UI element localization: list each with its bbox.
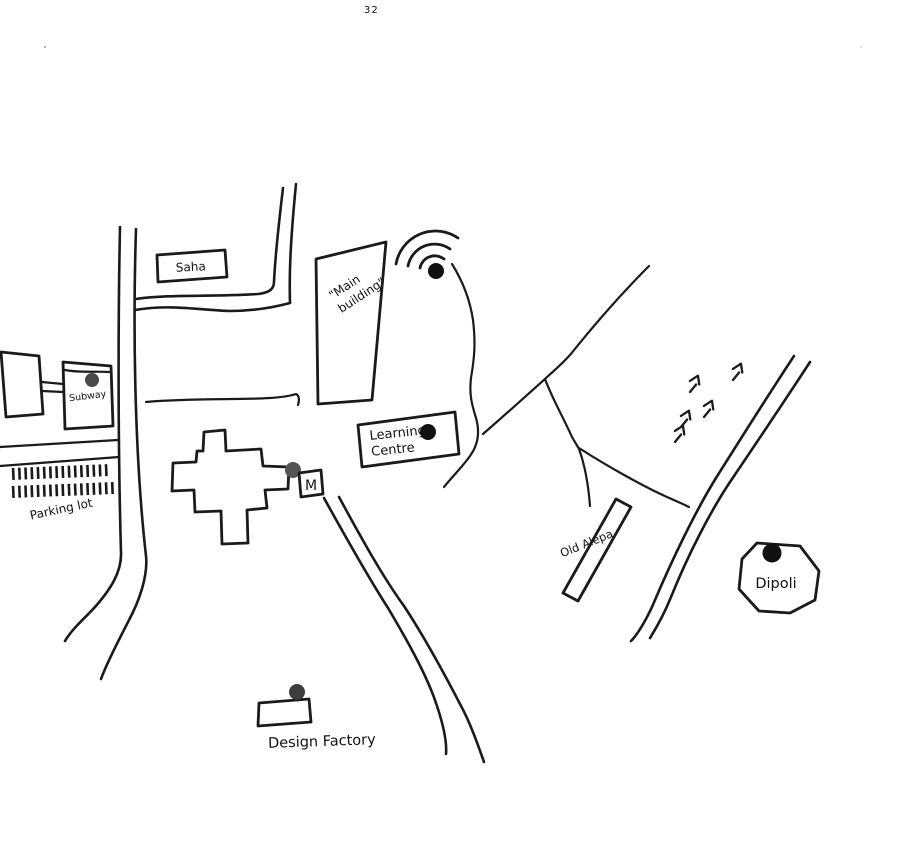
direction-arrow-icon (730, 362, 745, 382)
connector-path (42, 382, 63, 392)
top-road (135, 184, 296, 311)
design-factory-dot (289, 684, 305, 700)
parking-lot-label: Parking lot (29, 496, 94, 523)
subway-area: Subway (1, 352, 113, 429)
direction-arrow-icon (701, 399, 716, 419)
cross-building: M (172, 430, 323, 544)
main-building: "Main building" (316, 231, 458, 404)
small-building (1, 352, 43, 417)
paper-speck (860, 46, 862, 48)
learning-centre-label: Learning Centre (369, 423, 432, 460)
wifi-signal-icon (396, 231, 458, 279)
direction-arrow-icon (687, 374, 702, 394)
central-diagonal-road (324, 497, 484, 762)
path-from-main-building (444, 264, 478, 487)
flow-arrows (672, 362, 745, 444)
subway-label: Subway (69, 389, 108, 405)
footpaths (444, 264, 689, 507)
right-diagonal-road (631, 356, 810, 641)
learning-centre: Learning Centre (358, 412, 459, 467)
sketch-map-page: 32 (0, 0, 900, 844)
dipoli-dot (763, 544, 782, 563)
subway-marker-dot (85, 373, 99, 387)
paper-speck (44, 46, 46, 48)
main-building-label: "Main building" (326, 261, 387, 315)
signal-marker-dot (428, 263, 444, 279)
direction-arrow-icon (672, 424, 687, 444)
metro-label: M (305, 478, 317, 494)
parking-spaces-row (12, 488, 114, 492)
saha-label: Saha (175, 259, 206, 275)
old-alepa-label: Old Alepa (558, 526, 615, 560)
direction-arrow-icon (678, 409, 693, 429)
design-factory: Design Factory (258, 684, 376, 752)
design-factory-label: Design Factory (268, 732, 377, 752)
metro-sign: M (299, 470, 323, 497)
page-number: 32 (364, 5, 379, 16)
saha-building: Saha (157, 250, 227, 282)
dipoli: Dipoli (739, 543, 819, 613)
parking-spaces-row (12, 470, 110, 474)
parking-lot: Parking lot (0, 440, 119, 523)
campus-sketch-map: 32 (0, 0, 900, 844)
dipoli-label: Dipoli (755, 576, 796, 592)
left-road (65, 227, 146, 679)
old-alepa: Old Alepa (558, 499, 631, 601)
middle-street (146, 394, 299, 405)
